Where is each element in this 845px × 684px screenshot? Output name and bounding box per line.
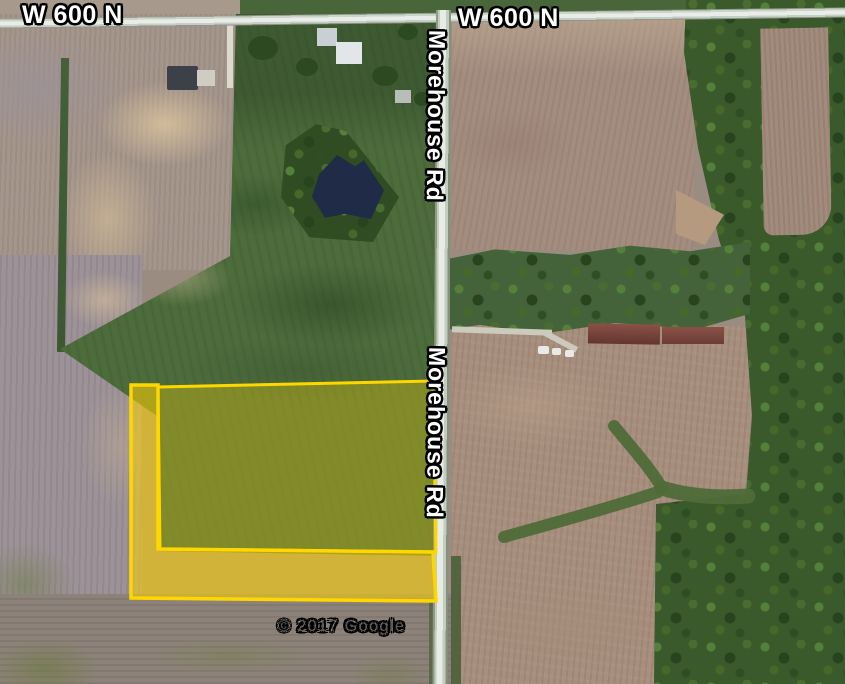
road-label-w600n-right: W 600 N xyxy=(458,4,559,33)
map-watermark: © 2017 Google xyxy=(278,618,405,636)
parcel-highlight-upper-field xyxy=(158,381,436,552)
road-label-morehouse-upper: Morehouse Rd xyxy=(421,30,450,202)
road-label-morehouse-lower: Morehouse Rd xyxy=(421,347,450,519)
map-canvas[interactable]: W 600 N W 600 N Morehouse Rd Morehouse R… xyxy=(0,0,845,684)
road-label-w600n-left: W 600 N xyxy=(22,1,123,30)
